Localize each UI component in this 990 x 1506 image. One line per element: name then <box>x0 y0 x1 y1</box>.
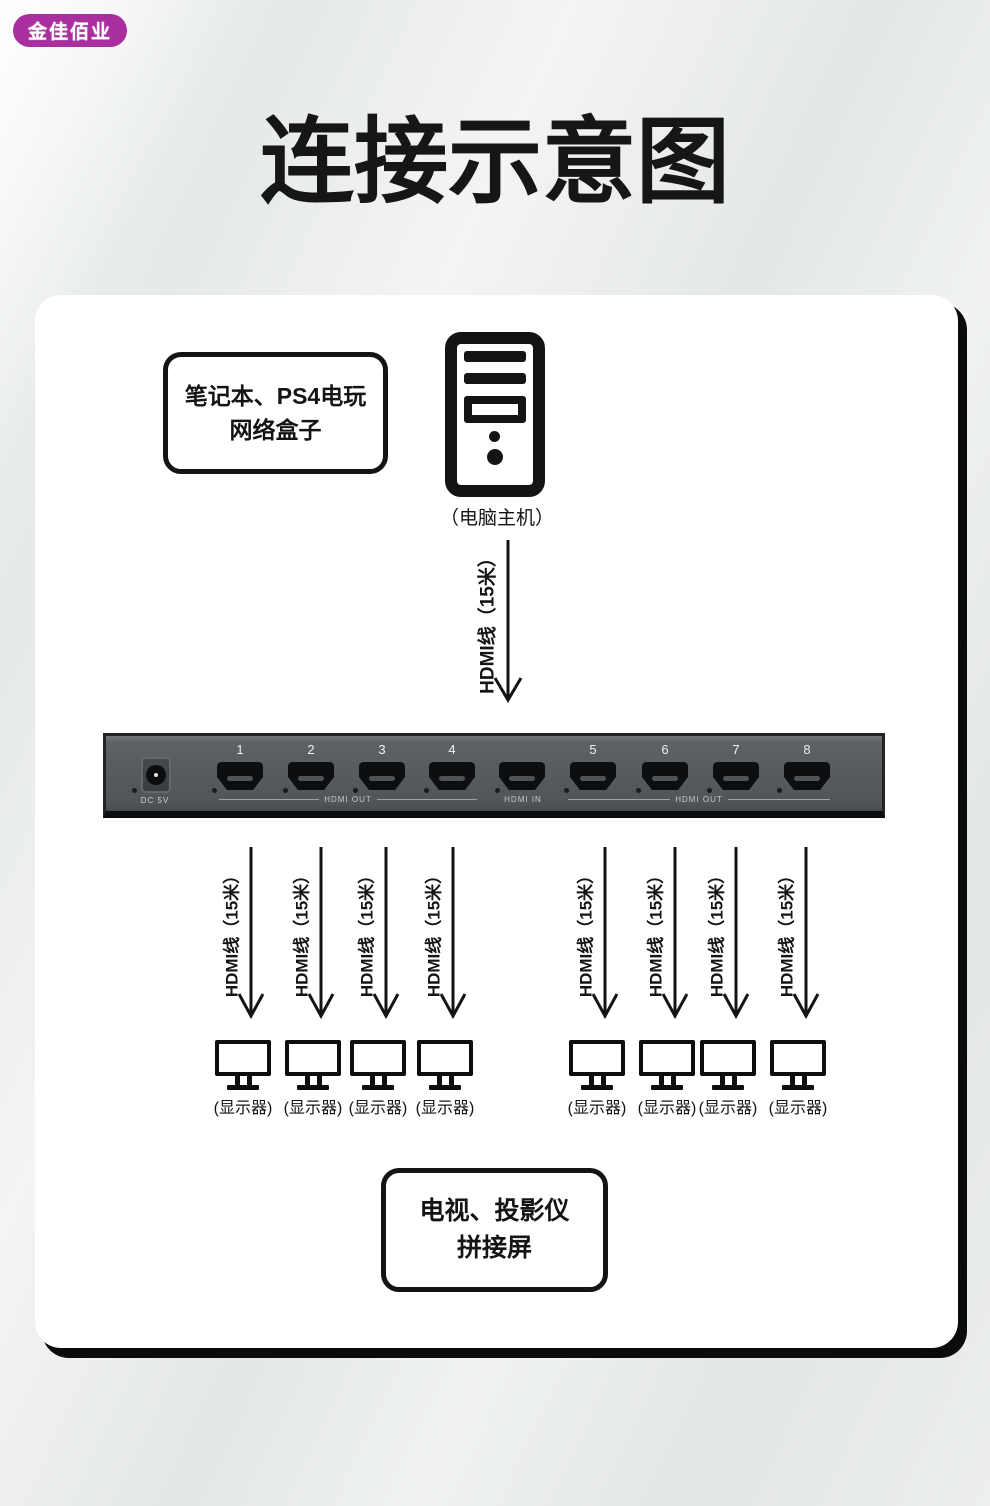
monitor-stand <box>790 1076 807 1085</box>
output-column-3: HDMI线（15米）(显示器) <box>343 845 413 1118</box>
port-number: 8 <box>784 742 830 760</box>
monitor-stand <box>235 1076 252 1085</box>
output-cable: HDMI线（15米） <box>632 845 702 1019</box>
hdmi-in-group-label: HDMI IN <box>493 793 553 805</box>
hdmi-connector-icon <box>429 762 475 790</box>
output-column-7: HDMI线（15米）(显示器) <box>693 845 763 1118</box>
divider-line <box>377 799 477 800</box>
hdmi-connector-icon <box>288 762 334 790</box>
monitor-icon <box>350 1040 406 1090</box>
monitor-caption: (显示器) <box>416 1094 475 1118</box>
monitor-icon <box>700 1040 756 1090</box>
output-cable: HDMI线（15米） <box>410 845 480 1019</box>
input-cable-label: HDMI线（15米） <box>473 548 500 694</box>
sink-device-label-line1: 电视、投影仪 <box>419 1193 569 1230</box>
page-title: 连接示意图 <box>0 86 990 222</box>
monitor-base <box>782 1085 814 1090</box>
port-number: 5 <box>570 742 616 760</box>
monitor-screen <box>770 1040 826 1076</box>
sink-device-box: 电视、投影仪 拼接屏 <box>381 1168 608 1292</box>
output-column-4: HDMI线（15米）(显示器) <box>410 845 480 1118</box>
divider-line <box>568 799 670 800</box>
port-number: 2 <box>288 742 334 760</box>
hdmi-out-port-5: 5 <box>570 742 616 790</box>
screw-dot-icon <box>212 788 217 793</box>
hdmi-out-port-2: 2 <box>288 742 334 790</box>
monitor-screen <box>639 1040 695 1076</box>
hdmi-out-right-label: HDMI OUT <box>675 795 723 804</box>
output-cable: HDMI线（15米） <box>278 845 348 1019</box>
output-cable-label: HDMI线（15米） <box>288 867 313 997</box>
port-number <box>499 742 545 760</box>
hdmi-connector-icon <box>570 762 616 790</box>
monitor-base <box>651 1085 683 1090</box>
output-cable: HDMI线（15米） <box>343 845 413 1019</box>
monitor-icon <box>285 1040 341 1090</box>
dc-power-jack-icon <box>141 757 171 793</box>
monitor-stand <box>305 1076 322 1085</box>
hdmi-out-port-8: 8 <box>784 742 830 790</box>
sink-device-label-line2: 拼接屏 <box>457 1230 532 1267</box>
hdmi-connector-icon <box>499 762 545 790</box>
output-column-6: HDMI线（15米）(显示器) <box>632 845 702 1118</box>
hdmi-connector-icon <box>642 762 688 790</box>
monitor-stand <box>589 1076 606 1085</box>
source-device-label-line1: 笔记本、PS4电玩 <box>185 379 366 413</box>
output-cable: HDMI线（15米） <box>562 845 632 1019</box>
hdmi-out-port-6: 6 <box>642 742 688 790</box>
brand-badge: 金佳佰业 <box>13 14 127 47</box>
output-cable-label: HDMI线（15米） <box>572 867 597 997</box>
monitor-base <box>712 1085 744 1090</box>
output-cable: HDMI线（15米） <box>208 845 278 1019</box>
hdmi-in-label: HDMI IN <box>504 795 542 804</box>
output-column-1: HDMI线（15米）(显示器) <box>208 845 278 1118</box>
monitor-icon <box>417 1040 473 1090</box>
monitor-stand <box>370 1076 387 1085</box>
hdmi-connector-icon <box>713 762 759 790</box>
monitor-base <box>297 1085 329 1090</box>
hdmi-out-port-3: 3 <box>359 742 405 790</box>
computer-caption: （电脑主机） <box>440 503 554 530</box>
dc-jack-pin <box>154 773 158 777</box>
output-cable-label: HDMI线（15米） <box>703 867 728 997</box>
divider-line <box>219 799 319 800</box>
monitor-stand <box>720 1076 737 1085</box>
port-number: 3 <box>359 742 405 760</box>
hdmi-connector-icon <box>217 762 263 790</box>
port-number: 6 <box>642 742 688 760</box>
output-column-2: HDMI线（15米）(显示器) <box>278 845 348 1118</box>
hdmi-out-left-group-label: HDMI OUT <box>219 793 477 805</box>
output-cable-label: HDMI线（15米） <box>773 867 798 997</box>
output-column-8: HDMI线（15米）(显示器) <box>763 845 833 1118</box>
monitor-screen <box>285 1040 341 1076</box>
computer-tower-icon <box>445 332 545 497</box>
hdmi-out-left-label: HDMI OUT <box>324 795 372 804</box>
diagram-card: 笔记本、PS4电玩 网络盒子 （电脑主机） HDMI线（15米） DC 5V 1… <box>35 295 958 1348</box>
monitor-caption: (显示器) <box>568 1094 627 1118</box>
dc-power-label: DC 5V <box>141 796 170 805</box>
monitor-caption: (显示器) <box>769 1094 828 1118</box>
hdmi-out-port-1: 1 <box>217 742 263 790</box>
port-number: 4 <box>429 742 475 760</box>
port-number: 1 <box>217 742 263 760</box>
monitor-base <box>429 1085 461 1090</box>
source-device-box: 笔记本、PS4电玩 网络盒子 <box>163 352 388 474</box>
monitor-caption: (显示器) <box>214 1094 273 1118</box>
hdmi-connector-icon <box>359 762 405 790</box>
splitter-device: DC 5V 12345678 HDMI OUT HDMI IN HDMI OUT <box>103 733 885 818</box>
tower-slot-icon <box>464 373 526 384</box>
screw-dot-icon <box>132 788 137 793</box>
tower-slot-icon <box>464 351 526 362</box>
monitor-icon <box>215 1040 271 1090</box>
monitor-screen <box>417 1040 473 1076</box>
monitor-screen <box>700 1040 756 1076</box>
monitor-icon <box>569 1040 625 1090</box>
monitor-caption: (显示器) <box>284 1094 343 1118</box>
hdmi-connector-icon <box>784 762 830 790</box>
tower-drive-icon <box>464 396 526 423</box>
port-number: 7 <box>713 742 759 760</box>
hdmi-out-right-group-label: HDMI OUT <box>568 793 830 805</box>
output-cable: HDMI线（15米） <box>763 845 833 1019</box>
output-cable-label: HDMI线（15米） <box>642 867 667 997</box>
monitor-caption: (显示器) <box>699 1094 758 1118</box>
monitor-icon <box>770 1040 826 1090</box>
monitor-base <box>581 1085 613 1090</box>
page-background: 金佳佰业 连接示意图 笔记本、PS4电玩 网络盒子 （电脑主机） HDMI线（1… <box>0 0 990 1506</box>
hdmi-in-port <box>499 742 545 790</box>
tower-button-icon <box>487 449 503 465</box>
hdmi-out-port-4: 4 <box>429 742 475 790</box>
output-cable-label: HDMI线（15米） <box>420 867 445 997</box>
monitor-caption: (显示器) <box>349 1094 408 1118</box>
source-device-label-line2: 网络盒子 <box>230 413 322 447</box>
output-cable-label: HDMI线（15米） <box>353 867 378 997</box>
monitor-stand <box>437 1076 454 1085</box>
monitor-screen <box>569 1040 625 1076</box>
output-column-5: HDMI线（15米）(显示器) <box>562 845 632 1118</box>
monitor-base <box>362 1085 394 1090</box>
monitor-base <box>227 1085 259 1090</box>
monitor-screen <box>350 1040 406 1076</box>
hdmi-out-port-7: 7 <box>713 742 759 790</box>
monitor-screen <box>215 1040 271 1076</box>
monitor-stand <box>659 1076 676 1085</box>
divider-line <box>728 799 830 800</box>
monitor-icon <box>639 1040 695 1090</box>
tower-button-icon <box>489 431 500 442</box>
monitor-caption: (显示器) <box>638 1094 697 1118</box>
output-cable-label: HDMI线（15米） <box>218 867 243 997</box>
output-cable: HDMI线（15米） <box>693 845 763 1019</box>
